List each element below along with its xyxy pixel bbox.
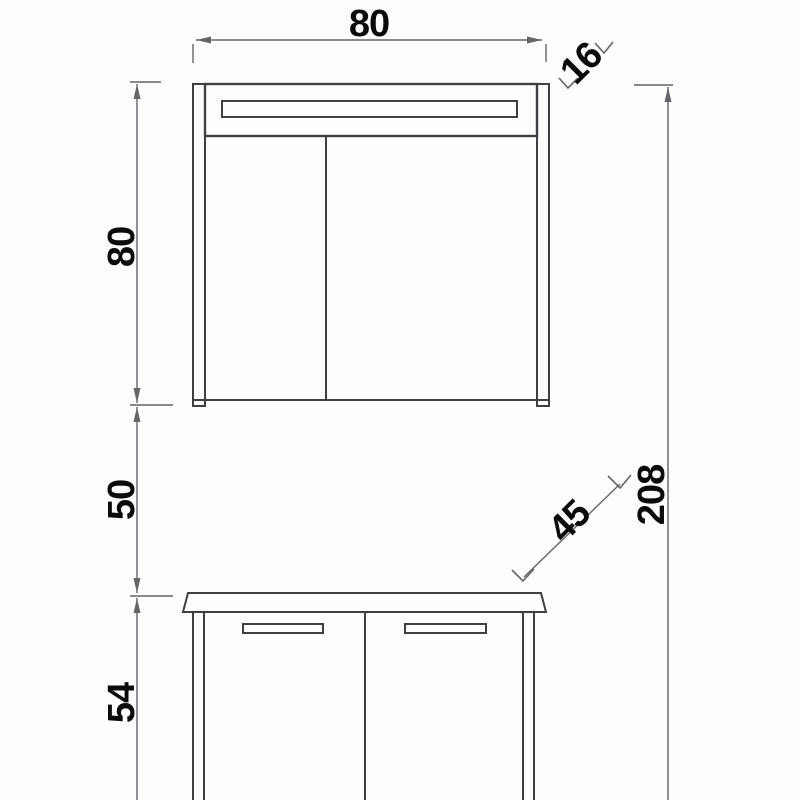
vanity-unit [183, 593, 546, 800]
vanity-right-door-handle [405, 624, 486, 633]
dim-cabinet-height: 80 [101, 82, 173, 405]
dim-cabinet-width: 80 [193, 3, 546, 63]
mirror-right-door [326, 136, 537, 400]
mirror-cabinet-top-strip [205, 84, 537, 136]
dim-arrow-bottom [134, 578, 141, 593]
dim-label-total-height: 208 [631, 465, 673, 525]
dim-vanity-height: 54 [101, 598, 143, 800]
dim-wall-gap: 50 [101, 407, 173, 596]
dim-arrow-top [134, 598, 141, 613]
mirror-cabinet-left-side-panel [193, 84, 205, 406]
dim-vanity-depth: 45 [512, 475, 631, 581]
dim-arrow-left [196, 37, 211, 44]
dim-chevron-top [608, 475, 631, 488]
dim-arrow-right [527, 37, 542, 44]
mirror-cabinet-right-side-panel [537, 84, 549, 406]
dim-label-vanity-height: 54 [101, 682, 143, 723]
furniture-dimension-drawing: 80 16 80 50 54 [0, 0, 800, 800]
vanity-left-door [204, 612, 365, 800]
dim-arrow-bottom [134, 388, 141, 403]
dim-label-cabinet-depth: 16 [552, 34, 610, 92]
mirror-cabinet [193, 84, 549, 406]
dim-cabinet-depth: 16 [552, 34, 613, 92]
dim-label-cabinet-height: 80 [101, 227, 143, 267]
dim-arrow-top [665, 87, 672, 102]
vanity-countertop [183, 593, 546, 612]
dim-label-wall-gap: 50 [101, 480, 143, 520]
vanity-right-side-panel [523, 612, 534, 800]
dim-label-cabinet-width: 80 [349, 3, 389, 45]
dim-label-vanity-depth: 45 [540, 492, 599, 551]
light-bar [222, 101, 517, 117]
vanity-left-side-panel [193, 612, 204, 800]
dim-total-height: 208 [631, 85, 673, 800]
dim-arrow-top [134, 407, 141, 422]
technical-drawing-page: 80 16 80 50 54 [0, 0, 800, 800]
mirror-left-door [205, 136, 326, 400]
dim-arrow-top [134, 84, 141, 99]
vanity-left-door-handle [243, 624, 323, 633]
vanity-right-door [365, 612, 523, 800]
